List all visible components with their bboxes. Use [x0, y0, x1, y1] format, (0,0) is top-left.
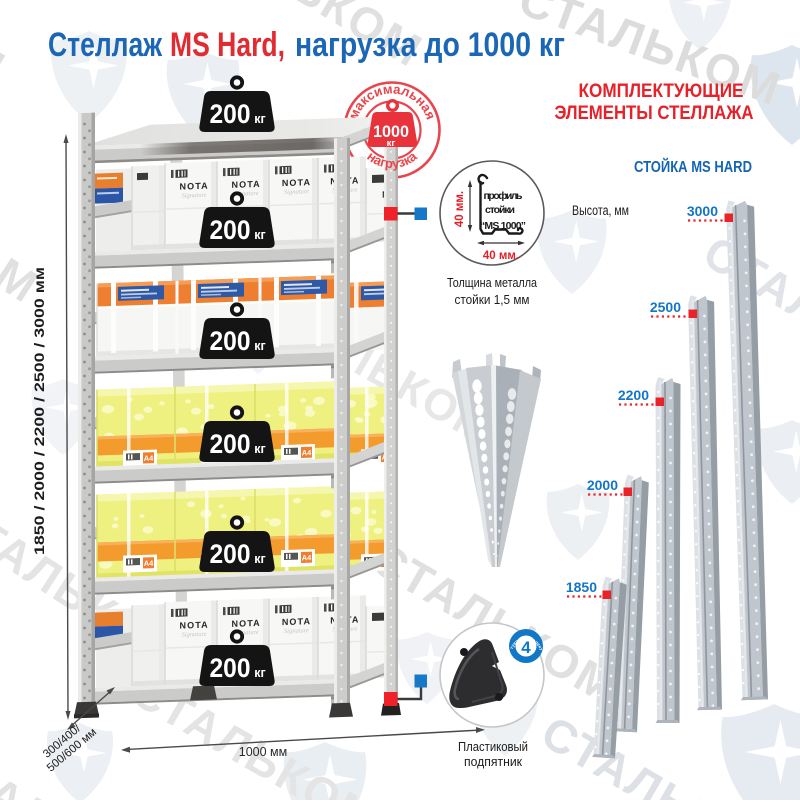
svg-text:2200: 2200 — [618, 387, 649, 403]
svg-text:40 мм.: 40 мм. — [483, 250, 519, 262]
svg-text:кг: кг — [254, 112, 265, 126]
svg-text:подпятник: подпятник — [464, 754, 522, 769]
svg-text:Толщина металла: Толщина металла — [447, 275, 538, 290]
svg-text:Signature: Signature — [182, 631, 207, 639]
svg-text:профиль: профиль — [484, 190, 524, 202]
svg-text:200: 200 — [210, 429, 251, 459]
svg-text:200: 200 — [210, 653, 251, 683]
svg-text:NOTA: NOTA — [180, 181, 209, 192]
svg-text:2000: 2000 — [587, 477, 618, 493]
svg-text:3000: 3000 — [687, 203, 718, 219]
svg-text:Signature: Signature — [284, 627, 309, 635]
svg-text:стойки: стойки — [485, 204, 515, 216]
svg-text:A4: A4 — [302, 553, 312, 562]
svg-text:200: 200 — [210, 539, 251, 569]
svg-text:кг: кг — [254, 552, 265, 566]
svg-text:NOTA: NOTA — [232, 618, 261, 629]
svg-text:кг: кг — [387, 138, 396, 149]
svg-text:КОМПЛЕКТУЮЩИЕ: КОМПЛЕКТУЮЩИЕ — [579, 81, 744, 102]
svg-text:200: 200 — [210, 326, 251, 356]
svg-text:кг: кг — [254, 442, 265, 456]
svg-text:нагрузка до 1000 кг: нагрузка до 1000 кг — [295, 26, 565, 64]
svg-text:A4: A4 — [302, 448, 312, 457]
svg-text:Стеллаж: Стеллаж — [48, 26, 163, 64]
svg-text:200: 200 — [210, 99, 251, 129]
svg-text:1850: 1850 — [566, 579, 597, 595]
svg-text:Высота, мм: Высота, мм — [572, 203, 629, 218]
svg-text:NOTA: NOTA — [282, 177, 311, 188]
svg-text:NOTA: NOTA — [180, 620, 209, 631]
svg-text:NOTA: NOTA — [232, 179, 261, 190]
svg-text:Signature: Signature — [284, 188, 309, 196]
svg-text:40 мм.: 40 мм. — [454, 191, 466, 227]
svg-text:кг: кг — [254, 228, 265, 242]
svg-text:A4: A4 — [144, 559, 154, 568]
svg-text:ЭЛЕМЕНТЫ СТЕЛЛАЖА: ЭЛЕМЕНТЫ СТЕЛЛАЖА — [555, 103, 754, 124]
svg-text:A4: A4 — [144, 454, 154, 463]
svg-text:200: 200 — [210, 215, 251, 245]
svg-text:NOTA: NOTA — [282, 616, 311, 627]
svg-text:стойки 1,5 мм: стойки 1,5 мм — [455, 292, 530, 307]
svg-text:“MS 1000”: “MS 1000” — [480, 220, 526, 232]
svg-text:1000 мм: 1000 мм — [239, 745, 287, 759]
svg-text:кг: кг — [254, 666, 265, 680]
svg-text:2500: 2500 — [650, 299, 681, 315]
svg-text:Пластиковый: Пластиковый — [458, 739, 528, 754]
svg-text:Signature: Signature — [182, 192, 207, 200]
svg-text:СТОЙКА MS HARD: СТОЙКА MS HARD — [634, 157, 752, 176]
svg-text:кг: кг — [254, 339, 265, 353]
svg-text:MS Hard,: MS Hard, — [170, 26, 285, 64]
svg-text:1850 / 2000 / 2200 / 2500 / 30: 1850 / 2000 / 2200 / 2500 / 3000 мм — [31, 267, 47, 555]
